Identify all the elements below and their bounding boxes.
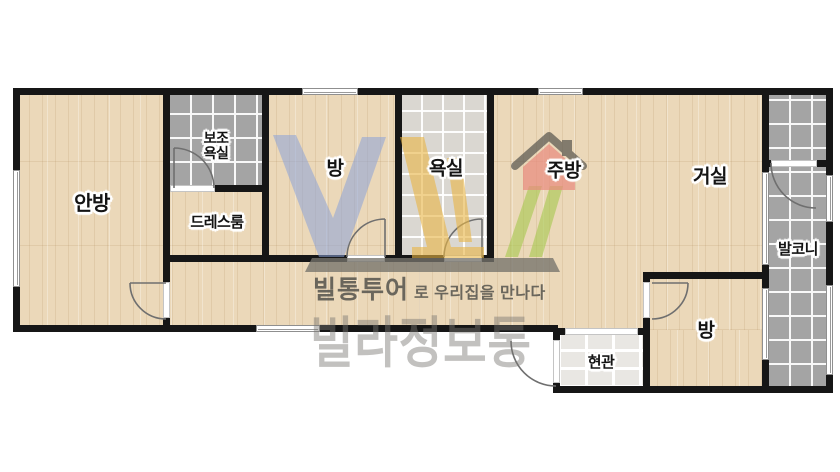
wall-room-bottom-top: [643, 272, 769, 279]
label-aux-bathroom: 보조 욕실: [204, 131, 229, 161]
label-kitchen: 주방: [547, 162, 581, 183]
window-balcony-outer-upper: [826, 175, 833, 222]
threshold-room-bottom: [643, 282, 650, 318]
label-room-top: 방: [327, 160, 344, 181]
threshold-room-top: [347, 255, 385, 262]
wall-entrance-bottom: [553, 386, 650, 393]
wall-bathroom-kitchen: [487, 88, 494, 262]
window-master-bedroom: [13, 170, 20, 287]
label-dress-room: 드레스룸: [190, 215, 243, 231]
label-room-bottom: 방: [698, 322, 715, 343]
wall-bottom-right: [643, 386, 833, 393]
window-balcony-outer-lower: [826, 285, 833, 375]
floor-plan-canvas: 빌통투어 로 우리집을 만나다 빌라정보통 안방 보조 욕실 드레스룸 방 욕실…: [0, 0, 840, 472]
label-entrance: 현관: [588, 355, 615, 371]
window-room-balcony: [762, 288, 769, 360]
threshold-entrance-inner: [565, 328, 638, 335]
threshold-balcony: [771, 160, 817, 167]
wall-top: [13, 88, 833, 95]
label-bathroom: 욕실: [429, 160, 463, 181]
label-balcony: 발코니: [778, 242, 818, 258]
window-kitchen: [538, 88, 583, 95]
threshold-aux-bathroom: [170, 185, 215, 192]
label-master-bedroom: 안방: [74, 194, 110, 216]
wall-dressroom-right: [262, 88, 269, 262]
label-living-room: 거실: [693, 168, 727, 189]
window-living-balcony: [762, 172, 769, 265]
threshold-bathroom: [444, 255, 482, 262]
window-room-top: [302, 88, 358, 95]
front-door-leaf: [553, 340, 560, 383]
threshold-master-bedroom: [163, 282, 170, 318]
wall-room-bathroom: [395, 88, 402, 262]
watermark-brand: 빌라정보통: [310, 298, 532, 378]
